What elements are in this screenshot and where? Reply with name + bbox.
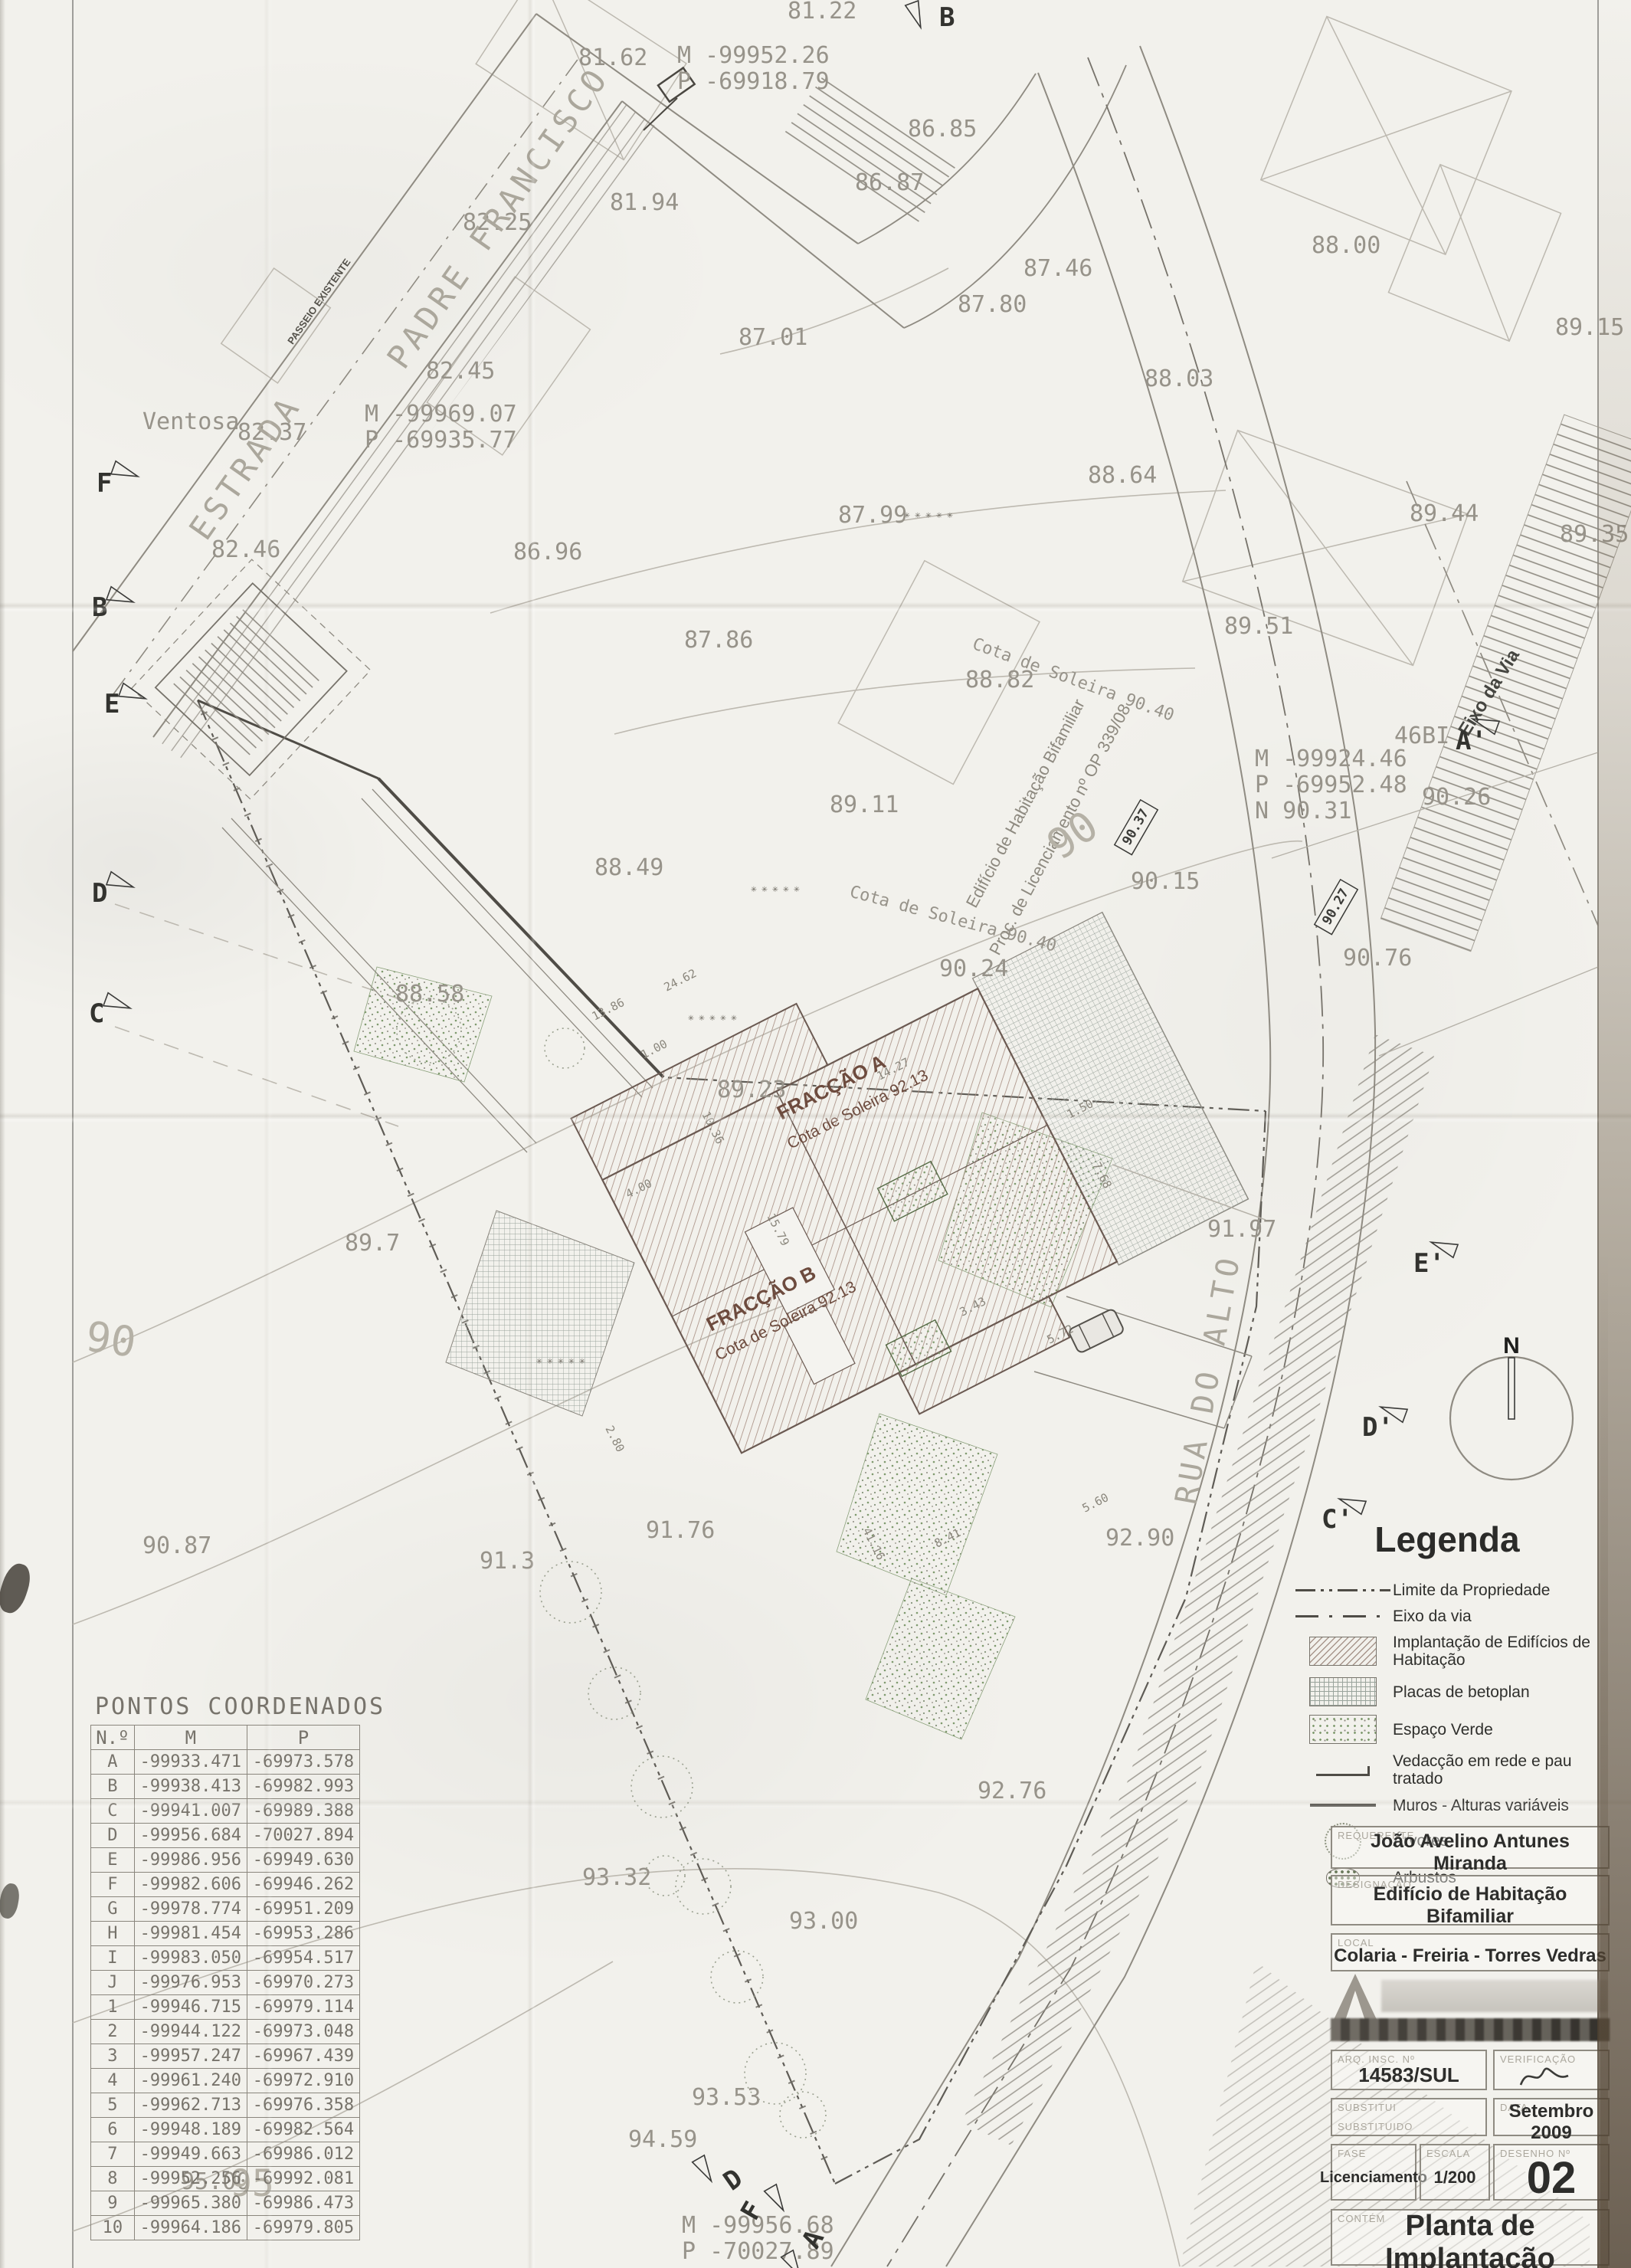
coord-m: -99941.007: [134, 1799, 247, 1824]
plan-label: 90.15: [1131, 868, 1200, 895]
shrub-icon: ✳: [579, 1355, 585, 1367]
shrub-icon: ✳: [699, 1012, 705, 1024]
plan-label: 93.53: [692, 2084, 761, 2111]
coord-p: -69973.578: [247, 1750, 359, 1775]
shrub-icon: ✳: [783, 883, 789, 895]
point-id: F: [91, 1873, 135, 1897]
table-row: 5-99962.713-69976.358: [91, 2093, 360, 2118]
limite-swatch-icon: [1295, 1589, 1390, 1591]
coord-p: -69976.358: [247, 2093, 359, 2118]
legend-item-limite: Limite da Propriedade: [1293, 1581, 1601, 1599]
plan-label: 93.00: [789, 1908, 858, 1935]
section-marker: F: [97, 468, 112, 499]
section-marker: D: [92, 878, 107, 909]
coord-p: -69982.993: [247, 1775, 359, 1799]
table-row: G-99978.774-69951.209: [91, 1897, 360, 1922]
legend-item-eixo: Eixo da via: [1293, 1608, 1601, 1625]
shrub-icon: ✳: [709, 1012, 716, 1024]
plan-label: 88.49: [594, 854, 663, 881]
table-row: 6-99948.189-69982.564: [91, 2118, 360, 2142]
shrub-icon: ✳: [568, 1355, 575, 1367]
legend-title: Legenda: [1293, 1519, 1601, 1560]
main-building: [572, 861, 1268, 1494]
shrub-icon: ✳: [947, 510, 953, 521]
coord-m: -99976.953: [134, 1971, 247, 1995]
legend-item-label: Implantação de Edifícios de Habitação: [1393, 1634, 1601, 1669]
point-id: B: [91, 1775, 135, 1799]
table-row: 10-99964.186-69979.805: [91, 2216, 360, 2240]
coord-p: -69951.209: [247, 1897, 359, 1922]
fase-value: Licenciamento: [1332, 2156, 1415, 2199]
fase-box: FASE Licenciamento: [1331, 2144, 1416, 2201]
section-marker: E: [104, 689, 120, 719]
plan-label: 88.00: [1312, 232, 1380, 259]
fence-swatch-icon: [1316, 1765, 1370, 1776]
point-id: D: [91, 1824, 135, 1848]
plan-label: 5.60: [1080, 1490, 1111, 1515]
coord-p: -70027.894: [247, 1824, 359, 1848]
legend-item-label: Placas de betoplan: [1393, 1683, 1530, 1701]
point-id: 10: [91, 2216, 135, 2240]
point-id: A: [91, 1750, 135, 1775]
tree-icon: [545, 1028, 585, 1068]
shrub-icon: ✳: [761, 883, 768, 895]
plan-label: 87.99: [838, 502, 907, 529]
stair-compound: [132, 559, 371, 799]
coord-m: -99956.684: [134, 1824, 247, 1848]
coord-m: -99944.122: [134, 2020, 247, 2044]
table-row: 3-99957.247-69967.439: [91, 2044, 360, 2069]
coord-p: -69979.805: [247, 2216, 359, 2240]
stipple-swatch-icon: [1309, 1715, 1377, 1744]
plan-label: 89.35: [1560, 521, 1629, 548]
coord-p: -69986.473: [247, 2191, 359, 2216]
plan-label: 82.45: [426, 358, 495, 385]
section-arrow-icon: [693, 2155, 718, 2184]
plan-label: 82.46: [211, 536, 280, 563]
point-id: J: [91, 1971, 135, 1995]
section-marker: D': [1362, 1412, 1394, 1443]
shrub-icon: ✳: [731, 1012, 737, 1024]
requerente-value: João Avelino Antunes Miranda: [1332, 1838, 1608, 1867]
legend-item-grid: Placas de betoplan: [1293, 1677, 1601, 1706]
coord-p: -69949.630: [247, 1848, 359, 1873]
plan-label: 87.80: [958, 291, 1027, 318]
point-id: 6: [91, 2118, 135, 2142]
grid-swatch-icon: [1309, 1677, 1377, 1706]
coord-p: -69954.517: [247, 1946, 359, 1971]
substitui-box: SUBSTITUI SUBSTITUIDO: [1331, 2098, 1487, 2136]
point-id: C: [91, 1799, 135, 1824]
coord-p: -69967.439: [247, 2044, 359, 2069]
plan-label: 88.58: [395, 981, 464, 1008]
coordinates-table: PONTOS COORDENADOS N.º M P A-99933.471-6…: [90, 1690, 360, 2240]
plan-label: P -69918.79: [677, 68, 830, 95]
plan-label: 91.97: [1207, 1216, 1276, 1243]
plan-label: 89.11: [830, 792, 899, 818]
coord-m: -99978.774: [134, 1897, 247, 1922]
section-marker: C: [89, 998, 104, 1029]
plan-label: 91.3: [480, 1548, 535, 1575]
legend-item-fence: Vedacção em rede e pau tratado: [1293, 1752, 1601, 1788]
plan-label: 87.01: [739, 324, 807, 351]
contem-value: Planta de Implantação: [1332, 2221, 1608, 2264]
table-row: B-99938.413-69982.993: [91, 1775, 360, 1799]
point-id: 2: [91, 2020, 135, 2044]
point-id: H: [91, 1922, 135, 1946]
col-header-m: M: [134, 1726, 247, 1750]
plan-label: 88.03: [1145, 365, 1213, 392]
coordinates-table-title: PONTOS COORDENADOS: [90, 1690, 360, 1725]
coord-m: -99986.956: [134, 1848, 247, 1873]
hatch-swatch-icon: [1309, 1637, 1377, 1666]
shrub-icon: ✳: [688, 1012, 694, 1024]
plan-label: 24.62: [662, 966, 699, 995]
point-id: 3: [91, 2044, 135, 2069]
coord-p: -69986.012: [247, 2142, 359, 2167]
point-id: G: [91, 1897, 135, 1922]
plan-label: 93.32: [582, 1864, 651, 1891]
section-arrow-icon: [106, 872, 136, 894]
plan-label: 81.94: [610, 189, 679, 216]
north-compass: N: [1446, 1330, 1581, 1506]
point-id: 1: [91, 1995, 135, 2020]
coord-m: -99933.471: [134, 1750, 247, 1775]
plan-label: 92.76: [978, 1778, 1046, 1804]
plan-label: 87.46: [1023, 255, 1092, 282]
plan-label: 91.76: [646, 1517, 715, 1544]
coord-p: -69989.388: [247, 1799, 359, 1824]
coord-p: -69979.114: [247, 1995, 359, 2020]
table-row: D-99956.684-70027.894: [91, 1824, 360, 1848]
stamp-band: [1381, 1980, 1608, 2012]
table-row: 7-99949.663-69986.012: [91, 2142, 360, 2167]
tree-icon: [780, 2092, 826, 2138]
table-row: C-99941.007-69989.388: [91, 1799, 360, 1824]
coord-p: -69992.081: [247, 2167, 359, 2191]
coord-m: -99964.186: [134, 2216, 247, 2240]
plan-label: 81.22: [788, 0, 856, 25]
legend-item-label: Limite da Propriedade: [1393, 1581, 1550, 1599]
plan-label: 89.15: [1555, 314, 1624, 341]
wall-swatch-icon: [1310, 1804, 1376, 1807]
plan-label: 90: [83, 1312, 139, 1366]
plan-label: Ventosa: [142, 408, 239, 435]
point-id: 4: [91, 2069, 135, 2093]
plan-label: 89.51: [1224, 613, 1293, 640]
coord-p: -69972.910: [247, 2069, 359, 2093]
shrub-icon: ✳: [936, 510, 942, 521]
point-id: 9: [91, 2191, 135, 2216]
shrub-icon: ✳: [794, 883, 800, 895]
coord-p: -69946.262: [247, 1873, 359, 1897]
eixo-swatch-icon: [1295, 1615, 1390, 1617]
plan-label: P -69935.77: [365, 427, 517, 454]
point-id: 7: [91, 2142, 135, 2167]
plan-label: 90.24: [939, 955, 1008, 982]
shrub-icon: ✳: [915, 510, 921, 521]
plan-label: N 90.31: [1255, 798, 1351, 824]
signature-icon: [1495, 2062, 1610, 2091]
table-row: 8-99952.256-69992.081: [91, 2167, 360, 2191]
shrub-icon: ✳: [751, 883, 757, 895]
arq-insc-box: ARQ. INSC. Nº 14583/SUL: [1331, 2050, 1487, 2090]
local-value: Colaria - Freiria - Torres Vedras: [1332, 1942, 1608, 1970]
verificacao-box: VERIFICAÇÃO: [1493, 2050, 1610, 2090]
point-id: 5: [91, 2093, 135, 2118]
table-row: I-99983.050-69954.517: [91, 1946, 360, 1971]
title-block: REQUERENTE João Avelino Antunes Miranda …: [1331, 1824, 1610, 2268]
legend-item-label: Muros - Alturas variáveis: [1393, 1797, 1569, 1814]
shrub-icon: ✳: [772, 883, 778, 895]
compass-needle: [1508, 1358, 1515, 1419]
coord-m: -99949.663: [134, 2142, 247, 2167]
shrub-icon: ✳: [925, 510, 932, 521]
arq-insc-value: 14583/SUL: [1332, 2062, 1485, 2089]
coord-m: -99962.713: [134, 2093, 247, 2118]
legend-item-label: Eixo da via: [1393, 1608, 1472, 1625]
plan-label: 90.26: [1422, 784, 1491, 811]
table-row: F-99982.606-69946.262: [91, 1873, 360, 1897]
col-header-p: P: [247, 1726, 359, 1750]
table-row: 4-99961.240-69972.910: [91, 2069, 360, 2093]
plan-label: 90.76: [1343, 945, 1412, 972]
desenho-box: DESENHO Nº 02: [1493, 2144, 1610, 2201]
data-value: Setembro 2009: [1495, 2110, 1608, 2135]
plan-label: 1.00: [639, 1037, 670, 1061]
plan-label: PASSEIO EXISTENTE: [285, 257, 353, 347]
coord-p: -69970.273: [247, 1971, 359, 1995]
coord-m: -99938.413: [134, 1775, 247, 1799]
local-box: LOCAL Colaria - Freiria - Torres Vedras: [1331, 1933, 1610, 1971]
plan-label: 2.80: [602, 1424, 627, 1454]
requerente-box: REQUERENTE João Avelino Antunes Miranda: [1331, 1826, 1610, 1869]
shrub-icon: ✳: [558, 1355, 564, 1367]
tree-icon: [540, 1562, 601, 1623]
coord-m: -99952.256: [134, 2167, 247, 2191]
col-header-numero: N.º: [91, 1726, 135, 1750]
desenho-value: 02: [1495, 2156, 1608, 2199]
contem-box: CONTÉM Planta de Implantação: [1331, 2209, 1610, 2266]
shrub-icon: ✳: [720, 1012, 726, 1024]
legend-item-hatch: Implantação de Edifícios de Habitação: [1293, 1634, 1601, 1669]
table-row: 2-99944.122-69973.048: [91, 2020, 360, 2044]
legend-item-label: Espaço Verde: [1393, 1721, 1493, 1739]
plan-label: 87.86: [684, 627, 753, 654]
plan-label: P -69952.48: [1255, 772, 1407, 798]
tree-icon: [676, 1859, 731, 1914]
point-id: I: [91, 1946, 135, 1971]
table-header-row: N.º M P: [91, 1726, 360, 1750]
plan-label: 89.44: [1410, 500, 1479, 527]
section-arrow-icon: [103, 993, 133, 1015]
site-plan-sheet: ✳✳✳✳✳✳✳✳✳✳✳✳✳✳✳✳✳✳✳✳ 81.2281.62M -99952.…: [0, 0, 1631, 2268]
coord-m: -99957.247: [134, 2044, 247, 2069]
coord-m: -99982.606: [134, 1873, 247, 1897]
section-marker: B: [939, 2, 955, 33]
designacao-box: DESIGNAÇÃO Edifício de Habitação Bifamil…: [1331, 1875, 1610, 1926]
tree-icon: [711, 1951, 763, 2003]
section-marker: A': [1456, 726, 1487, 756]
plan-label: 94.59: [628, 2126, 697, 2153]
table-row: J-99976.953-69970.273: [91, 1971, 360, 1995]
plan-label: 88.64: [1088, 462, 1157, 489]
plan-label: 90.87: [142, 1532, 211, 1559]
coord-p: -69973.048: [247, 2020, 359, 2044]
section-marker: B: [92, 592, 107, 623]
betoplan-west: [446, 1211, 634, 1416]
north-label: N: [1503, 1333, 1520, 1359]
designacao-value: Edifício de Habitação Bifamiliar: [1332, 1887, 1608, 1924]
table-row: 9-99965.380-69986.473: [91, 2191, 360, 2216]
coord-m: -99946.715: [134, 1995, 247, 2020]
legend-item-wall: Muros - Alturas variáveis: [1293, 1797, 1601, 1814]
plan-label: 86.96: [513, 539, 582, 565]
tree-icon: [631, 1756, 693, 1817]
shrub-icon: ✳: [547, 1355, 553, 1367]
legend-item-label: Vedacção em rede e pau tratado: [1393, 1752, 1601, 1788]
section-arrow-icon: [765, 2184, 790, 2214]
data-box: DATA Setembro 2009: [1493, 2098, 1610, 2136]
coord-m: -99981.454: [134, 1922, 247, 1946]
coord-m: -99965.380: [134, 2191, 247, 2216]
plan-label: 88.82: [965, 667, 1034, 693]
coord-p: -69982.564: [247, 2118, 359, 2142]
plan-label: M -99969.07: [365, 401, 517, 428]
escala-box: ESCALA 1/200: [1420, 2144, 1490, 2201]
table-row: H-99981.454-69953.286: [91, 1922, 360, 1946]
section-arrow-icon: [106, 587, 136, 609]
table-row: E-99986.956-69949.630: [91, 1848, 360, 1873]
coord-m: -99983.050: [134, 1946, 247, 1971]
substitui-label: SUBSTITUI: [1338, 2102, 1397, 2113]
substituido-label: SUBSTITUIDO: [1338, 2121, 1413, 2132]
point-id: E: [91, 1848, 135, 1873]
section-arrow-icon: [906, 1, 928, 30]
plan-label: 86.87: [855, 169, 924, 196]
point-id: 8: [91, 2167, 135, 2191]
shrub-icon: ✳: [536, 1355, 542, 1367]
plan-label: 86.85: [908, 116, 977, 143]
car-icon: [1068, 1308, 1125, 1353]
coord-p: -69953.286: [247, 1922, 359, 1946]
table-row: A-99933.471-69973.578: [91, 1750, 360, 1775]
plan-label: M -99952.26: [677, 42, 830, 69]
plan-label: M -99924.46: [1255, 746, 1407, 772]
section-marker: D: [718, 2163, 748, 2198]
table-row: 1-99946.715-69979.114: [91, 1995, 360, 2020]
plan-label: 89.7: [345, 1230, 400, 1257]
coord-m: -99961.240: [134, 2069, 247, 2093]
stamp-name-band: [1331, 2018, 1610, 2041]
section-arrow-icon: [111, 461, 140, 483]
escala-value: 1/200: [1421, 2156, 1489, 2199]
coord-m: -99948.189: [134, 2118, 247, 2142]
plan-label: 89.23: [717, 1077, 786, 1103]
legend-item-stipple: Espaço Verde: [1293, 1715, 1601, 1744]
section-marker: E': [1413, 1248, 1445, 1279]
plan-label: 92.90: [1105, 1525, 1174, 1552]
